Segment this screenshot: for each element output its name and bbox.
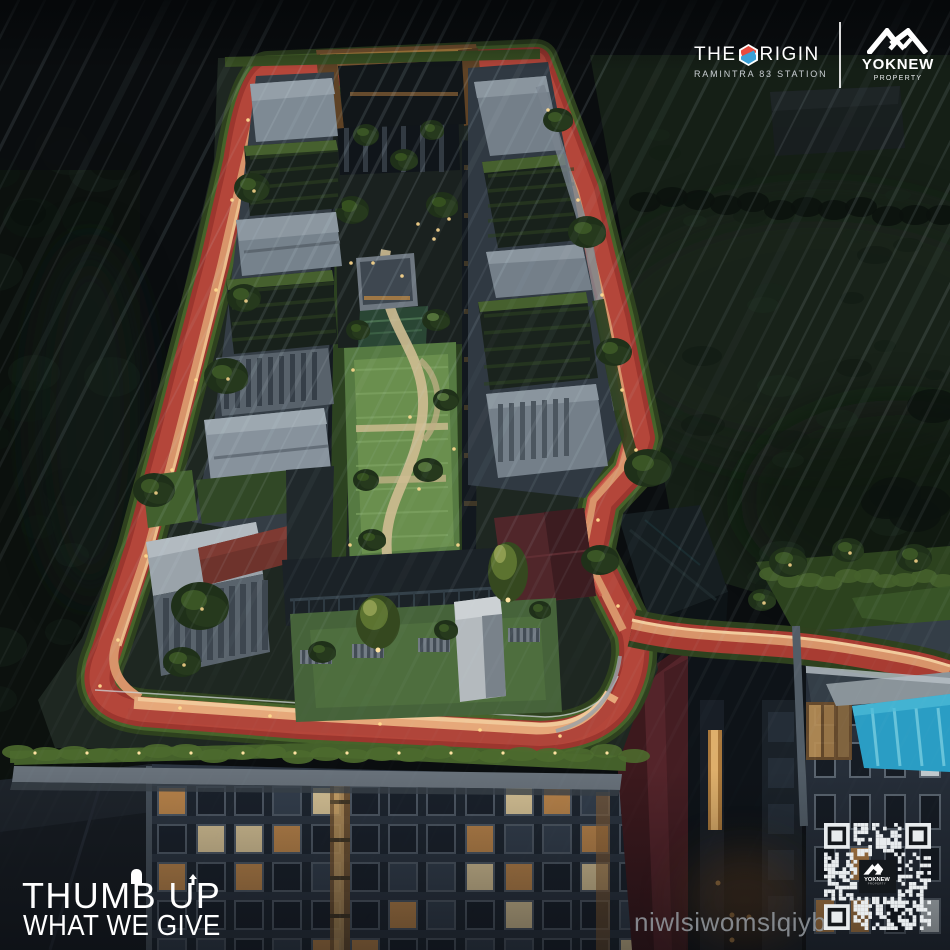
svg-text:YOKNEW: YOKNEW bbox=[864, 877, 890, 883]
svg-text:PROPERTY: PROPERTY bbox=[868, 881, 886, 885]
